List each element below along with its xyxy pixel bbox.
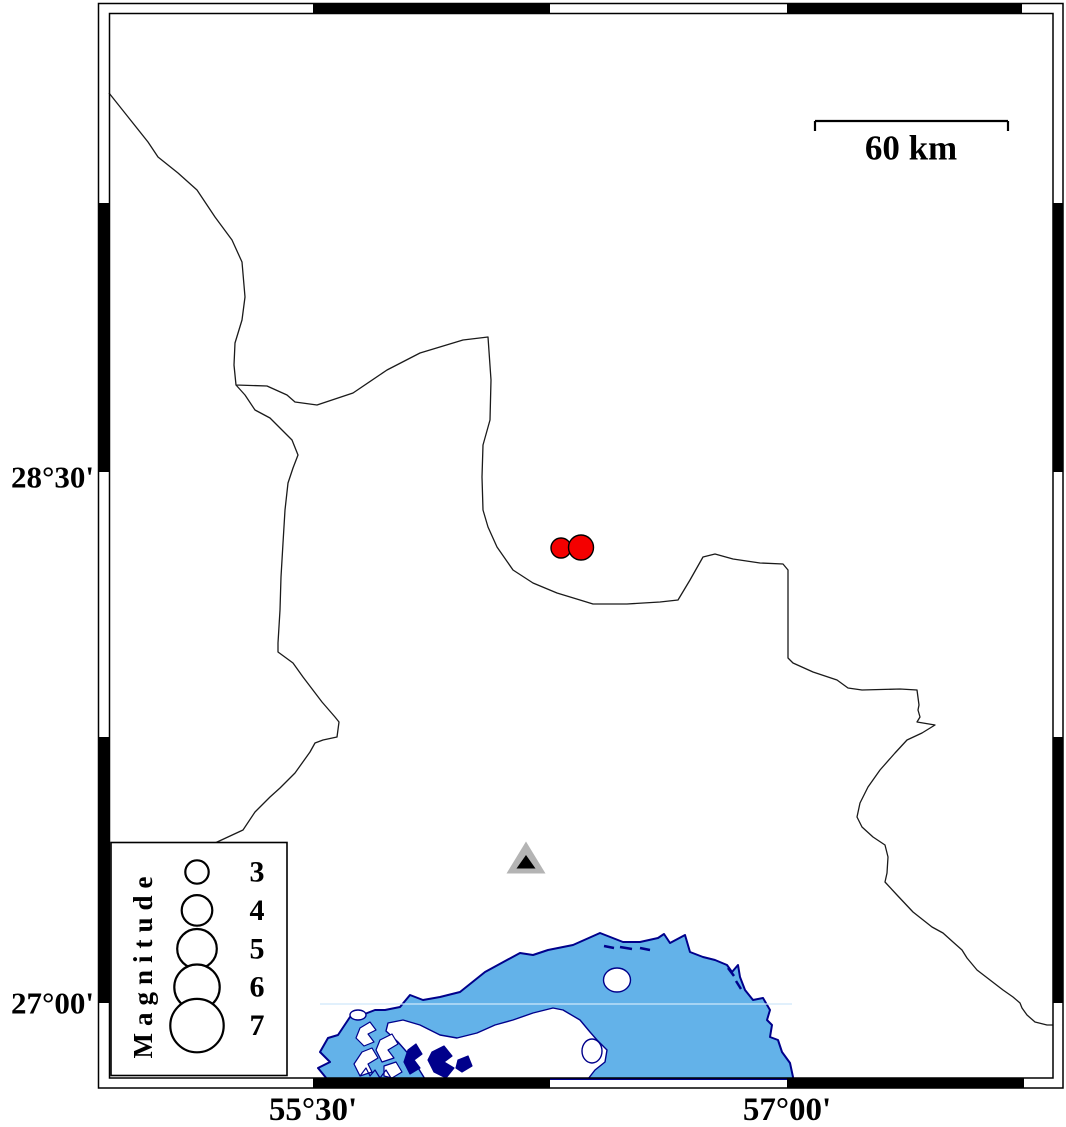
- left-axis-label-28-30: 28°30': [11, 460, 94, 495]
- left-axis-label-27-00: 27°00': [11, 986, 94, 1021]
- frame-tick-segment: [99, 737, 110, 1003]
- coastal-islet: [350, 1010, 366, 1020]
- frame-tick-segment: [787, 4, 1022, 14]
- frame-tick-segment: [1053, 737, 1064, 1003]
- legend-magnitude-label: 6: [250, 971, 265, 1004]
- legend-magnitude-label: 4: [250, 894, 265, 927]
- scale-bar: 60 km: [815, 121, 1008, 168]
- legend-magnitude-label: 3: [250, 856, 265, 889]
- map-svg: Magnitude 34567 60 km 28°30' 27°00' 55°3…: [0, 0, 1066, 1127]
- frame-tick-segment: [99, 203, 110, 472]
- larak-island: [582, 1039, 602, 1063]
- frame-tick-segment: [787, 1078, 1024, 1088]
- bottom-axis-label-57-00: 57°00': [743, 1092, 831, 1127]
- frame-tick-segment: [1053, 203, 1064, 472]
- scale-bar-label: 60 km: [865, 129, 957, 168]
- legend-box: Magnitude 34567: [111, 843, 287, 1076]
- earthquake-markers: [551, 535, 594, 560]
- legend-magnitude-label: 5: [250, 932, 265, 965]
- frame-tick-segment: [313, 1078, 550, 1088]
- legend-magnitude-circle: [177, 929, 217, 969]
- hormuz-island: [604, 968, 631, 992]
- seismicity-map-figure: Magnitude 34567 60 km 28°30' 27°00' 55°3…: [0, 0, 1066, 1127]
- legend-magnitude-label: 7: [250, 1009, 265, 1042]
- province-border-branch: [215, 385, 339, 843]
- bottom-axis-label-55-30: 55°30': [269, 1092, 357, 1127]
- frame-tick-segment: [313, 4, 550, 14]
- earthquake-marker: [569, 535, 594, 560]
- legend-magnitude-circle: [185, 860, 208, 883]
- legend-title: Magnitude: [128, 869, 158, 1058]
- legend-magnitude-circle: [182, 895, 213, 926]
- legend-magnitude-circle: [170, 999, 223, 1052]
